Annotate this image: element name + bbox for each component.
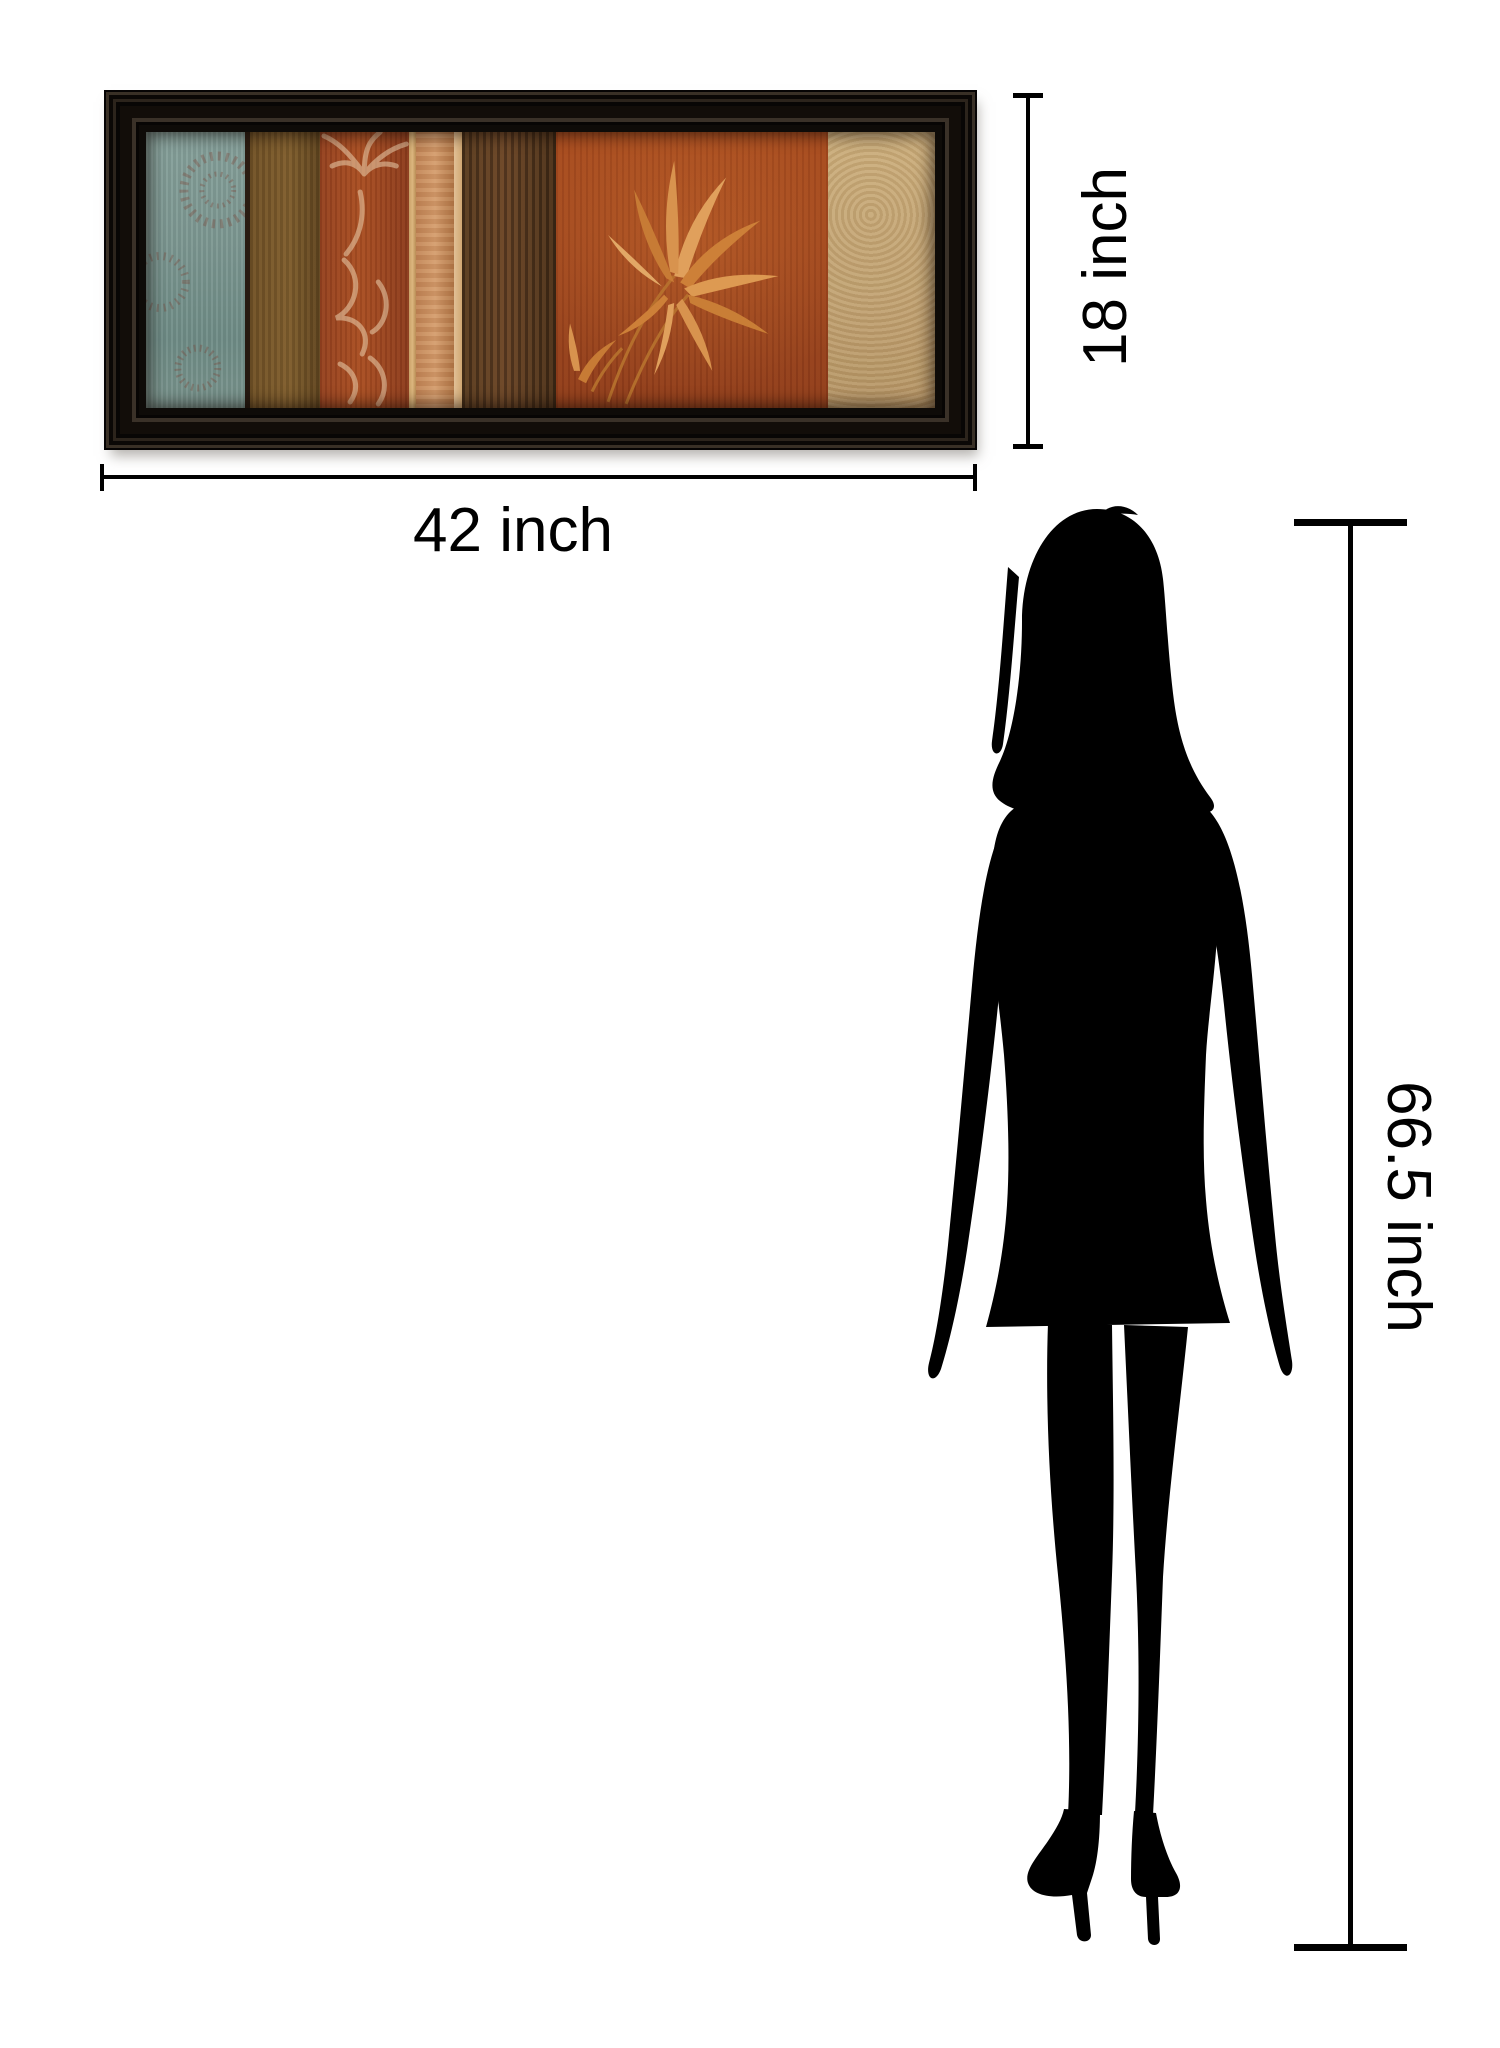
woman-silhouette [900,505,1320,1948]
artwork-print [146,132,935,408]
silhouette-left-leg [1047,1323,1113,1815]
leaf-cluster [569,161,779,383]
art-stripe-copper [416,132,455,408]
silhouette-hair-head [992,509,1214,819]
teal-shell-motif [146,132,245,408]
art-stripe-olive [250,132,320,408]
art-stripe-tan-line [409,132,416,408]
person-height-dimension-line [1348,519,1353,1950]
width-dimension-line [102,475,976,479]
silhouette-torso-skirt [986,802,1230,1327]
art-height-dimension-line [1026,93,1030,449]
art-stripe-damask [320,132,408,408]
damask-flourish-motif [320,132,408,408]
framed-artwork [104,90,977,450]
art-height-dimension-label: 18 inch [1075,167,1137,367]
width-dimension-label: 42 inch [413,500,613,562]
art-stripe-teal [146,132,245,408]
art-height-dimension-top-cap [1013,93,1043,98]
bamboo-leaves-motif [556,132,827,408]
art-stripe-light-line [454,132,461,408]
silhouette-left-shoe [1027,1809,1100,1941]
silhouette-right-shoe [1131,1811,1180,1945]
art-stripe-dark-brown [462,132,557,408]
art-height-dimension-bottom-cap [1013,444,1043,449]
width-dimension-right-tick [973,464,977,491]
width-dimension-left-tick [100,464,104,491]
art-stripe-gold [828,132,935,408]
art-stripe-russet-leaves [556,132,827,408]
silhouette-right-leg [1124,1325,1188,1815]
product-dimension-diagram: 42 inch 18 inch 66.5 inch [0,0,1500,2048]
person-height-dimension-label: 66.5 inch [1377,1081,1439,1333]
